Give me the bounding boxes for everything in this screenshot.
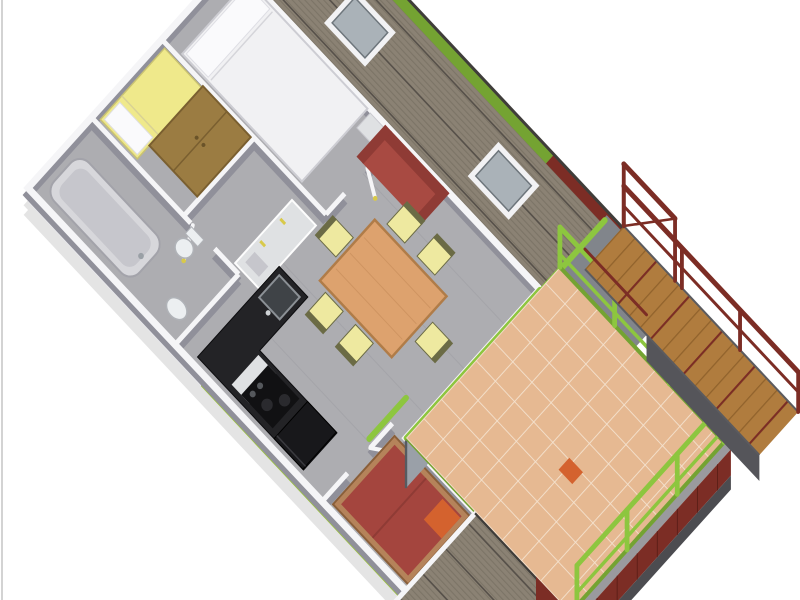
- floorplan-3d-scene: [0, 0, 800, 600]
- floorplan-render-canvas: [0, 0, 800, 600]
